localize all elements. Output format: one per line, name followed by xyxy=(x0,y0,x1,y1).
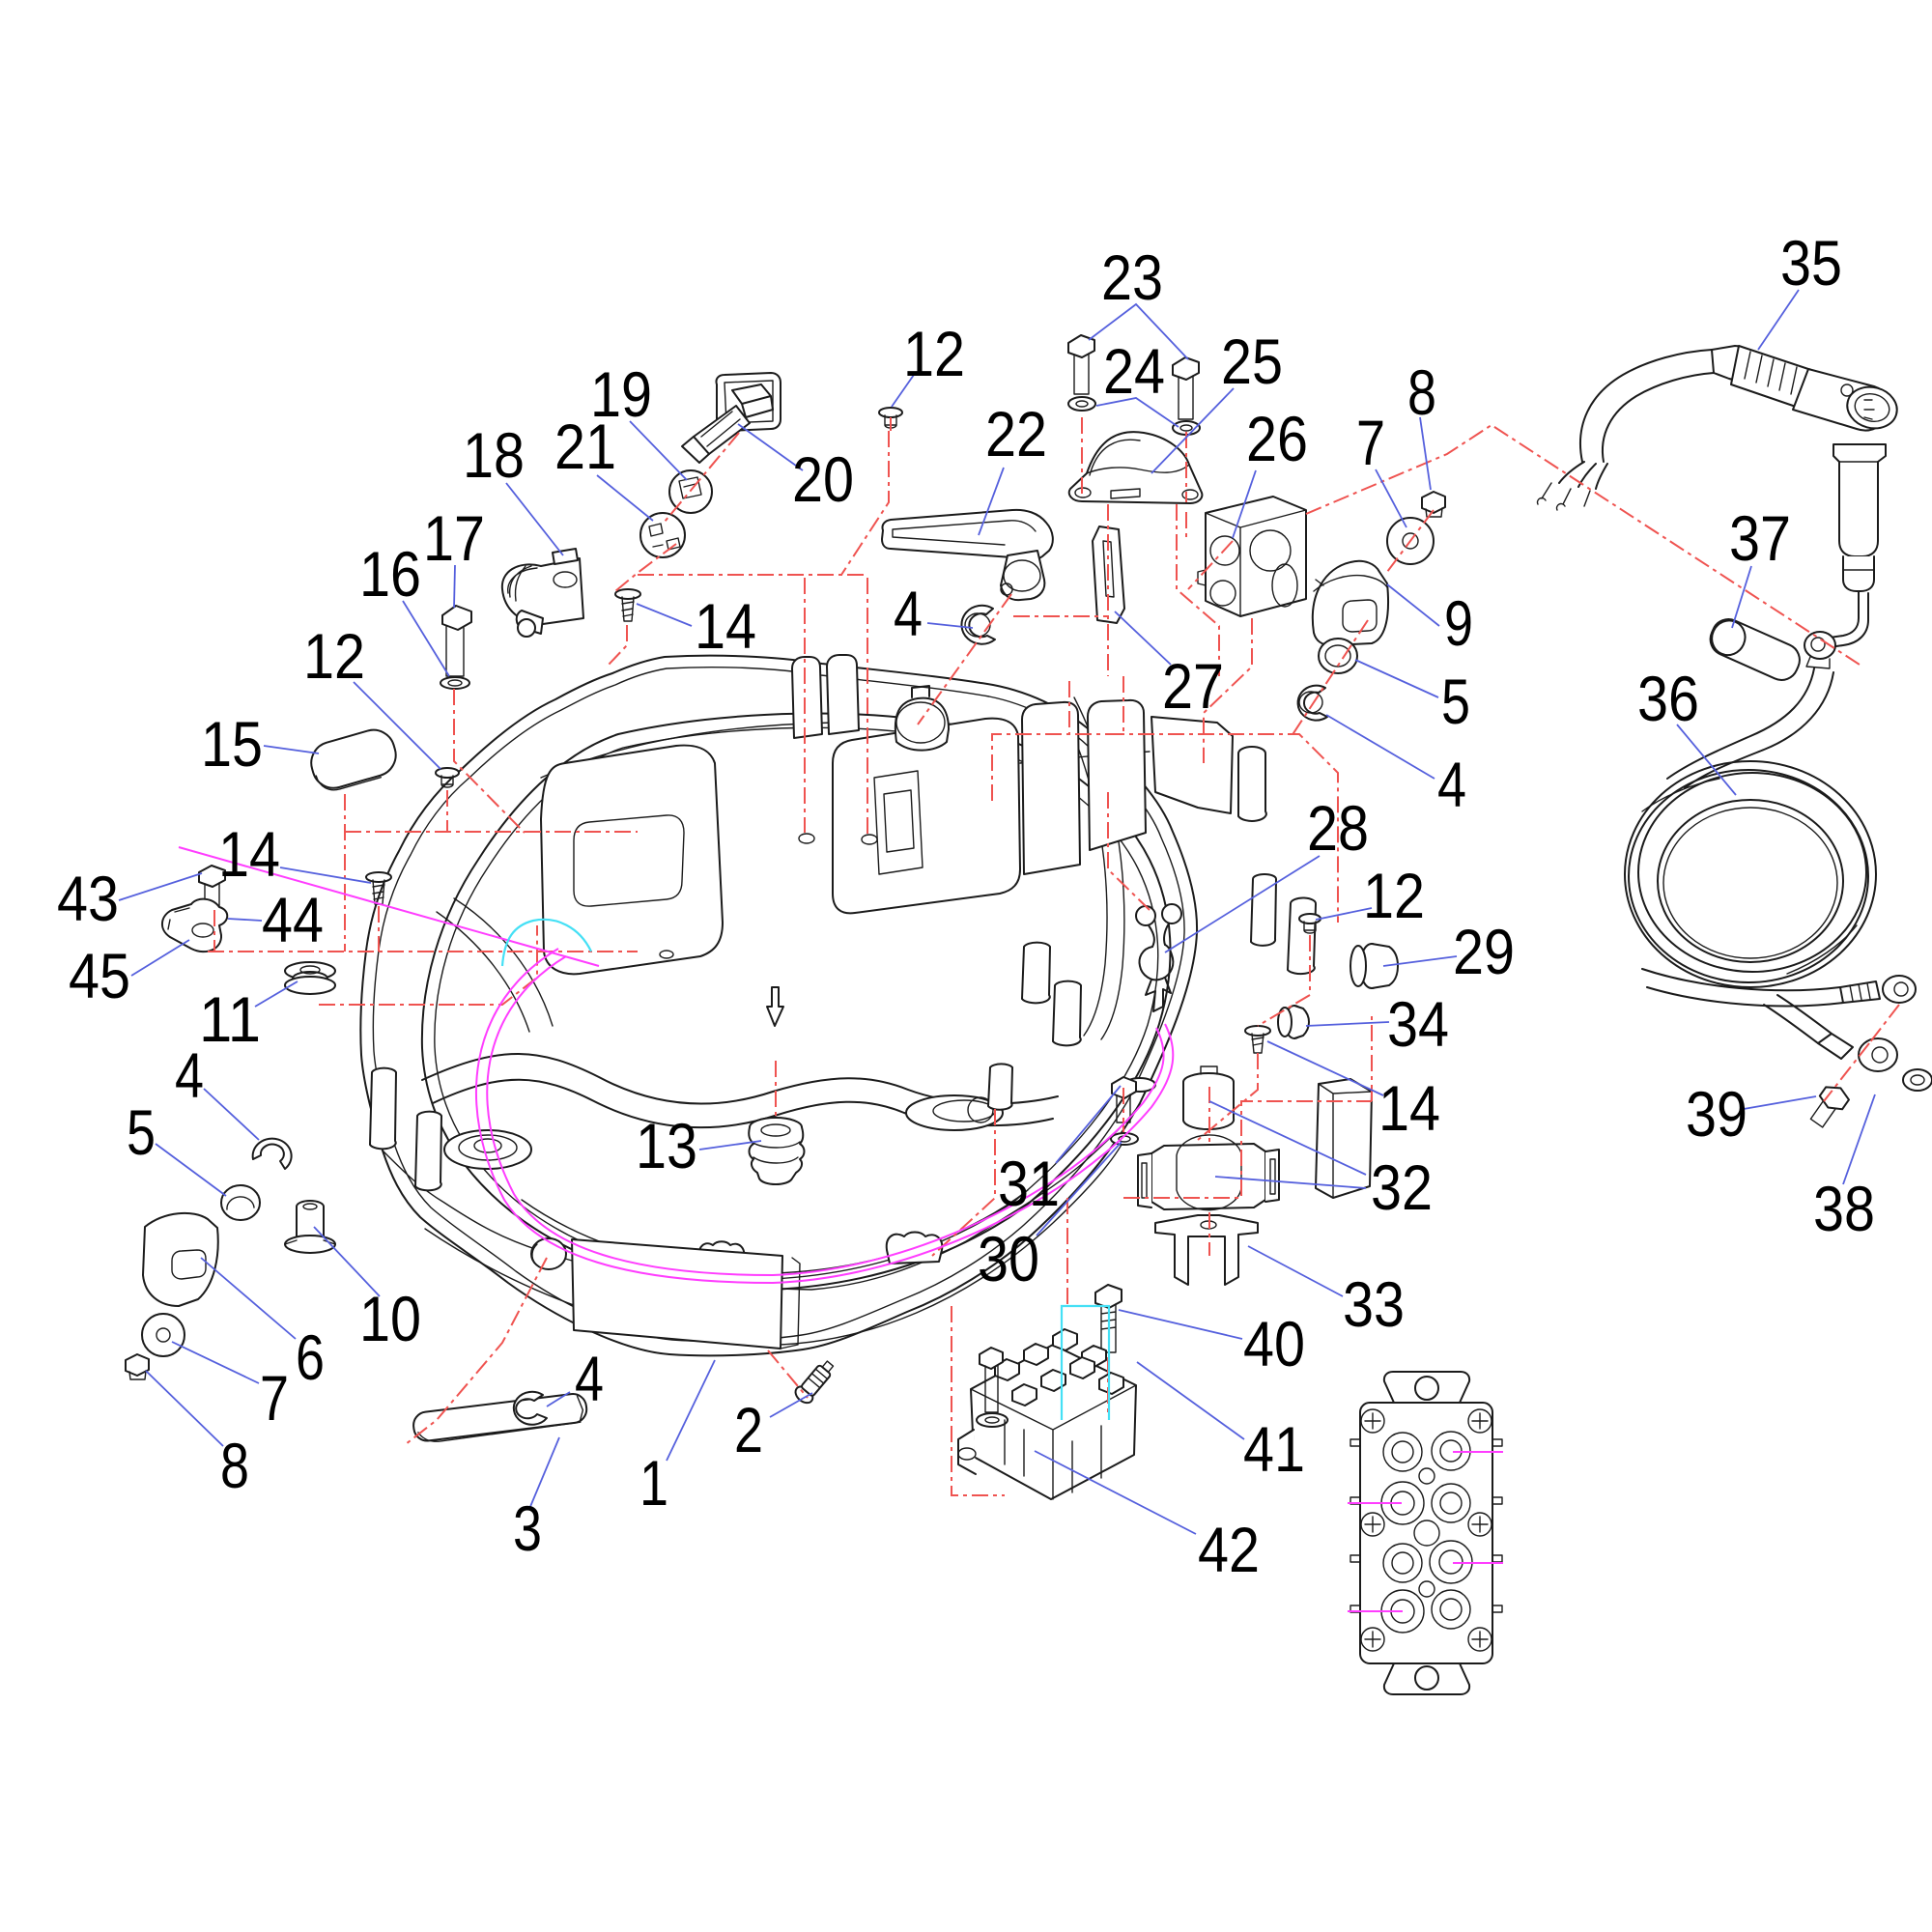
svg-text:44: 44 xyxy=(262,884,324,955)
svg-text:12: 12 xyxy=(903,318,965,389)
svg-text:21: 21 xyxy=(554,411,616,482)
svg-text:14: 14 xyxy=(695,590,756,662)
svg-text:4: 4 xyxy=(575,1343,604,1414)
svg-text:24: 24 xyxy=(1103,335,1165,407)
svg-text:9: 9 xyxy=(1444,587,1473,659)
svg-text:4: 4 xyxy=(894,578,923,649)
svg-text:17: 17 xyxy=(423,502,485,574)
svg-text:16: 16 xyxy=(359,538,421,610)
svg-text:7: 7 xyxy=(260,1362,289,1434)
svg-text:5: 5 xyxy=(1441,666,1470,737)
svg-text:6: 6 xyxy=(296,1321,325,1393)
svg-text:23: 23 xyxy=(1101,241,1163,313)
svg-text:43: 43 xyxy=(57,863,119,934)
svg-text:36: 36 xyxy=(1637,663,1699,734)
svg-text:4: 4 xyxy=(1437,749,1466,820)
svg-text:5: 5 xyxy=(127,1096,156,1168)
svg-text:39: 39 xyxy=(1686,1078,1747,1150)
svg-text:26: 26 xyxy=(1246,403,1308,474)
svg-text:4: 4 xyxy=(175,1039,204,1111)
svg-text:38: 38 xyxy=(1813,1173,1875,1244)
svg-text:27: 27 xyxy=(1162,650,1224,722)
svg-text:10: 10 xyxy=(359,1283,421,1354)
svg-text:14: 14 xyxy=(1378,1072,1440,1144)
svg-text:35: 35 xyxy=(1780,227,1842,298)
svg-text:22: 22 xyxy=(985,398,1047,469)
svg-text:28: 28 xyxy=(1307,792,1369,864)
svg-text:41: 41 xyxy=(1243,1413,1305,1485)
svg-text:37: 37 xyxy=(1729,502,1791,574)
svg-text:11: 11 xyxy=(199,983,261,1055)
svg-text:13: 13 xyxy=(636,1110,697,1181)
svg-text:8: 8 xyxy=(1407,356,1436,428)
svg-text:12: 12 xyxy=(1363,860,1425,931)
svg-text:42: 42 xyxy=(1198,1514,1260,1585)
svg-text:8: 8 xyxy=(220,1430,249,1501)
svg-text:18: 18 xyxy=(463,419,525,491)
svg-text:2: 2 xyxy=(734,1394,763,1465)
svg-text:32: 32 xyxy=(1371,1151,1433,1223)
svg-text:14: 14 xyxy=(218,818,280,890)
svg-text:1: 1 xyxy=(639,1447,668,1519)
svg-text:3: 3 xyxy=(513,1492,542,1564)
svg-text:30: 30 xyxy=(978,1223,1039,1294)
svg-text:40: 40 xyxy=(1243,1308,1305,1379)
svg-text:33: 33 xyxy=(1343,1268,1405,1340)
svg-text:20: 20 xyxy=(792,443,854,515)
svg-text:7: 7 xyxy=(1356,407,1385,478)
svg-text:25: 25 xyxy=(1221,326,1283,397)
svg-text:15: 15 xyxy=(201,708,263,780)
svg-text:45: 45 xyxy=(69,940,130,1011)
svg-text:12: 12 xyxy=(303,620,365,692)
svg-text:31: 31 xyxy=(998,1148,1060,1219)
svg-text:34: 34 xyxy=(1387,988,1449,1060)
svg-text:29: 29 xyxy=(1453,916,1515,987)
